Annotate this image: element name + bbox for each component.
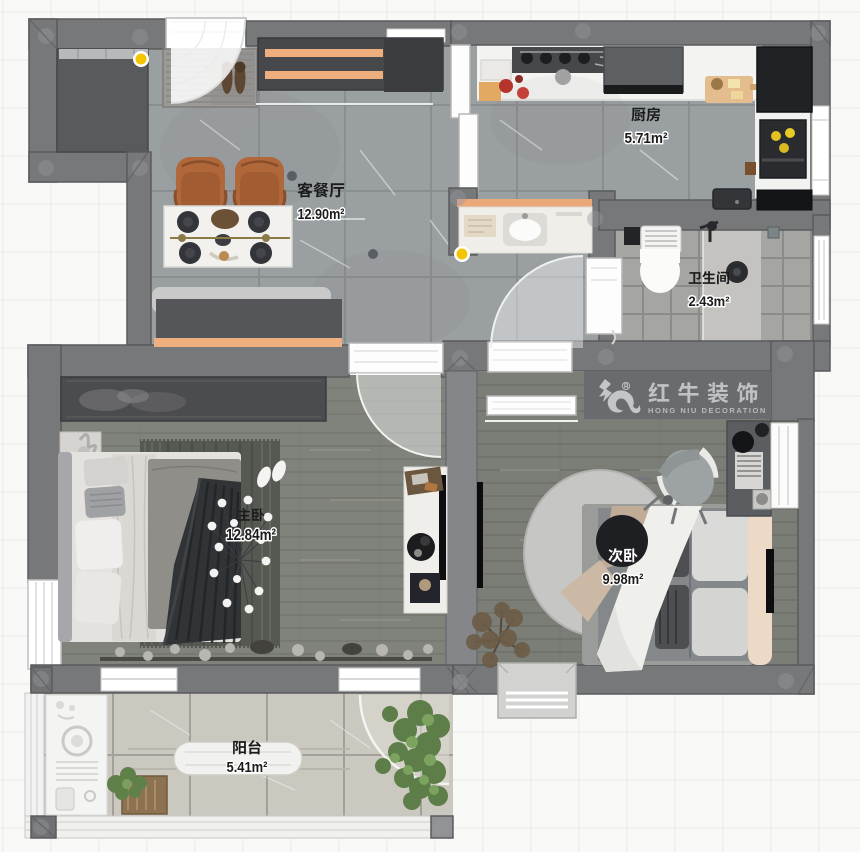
svg-text:12.90m²: 12.90m² — [298, 206, 345, 223]
svg-text:12.84m²: 12.84m² — [226, 527, 276, 544]
svg-text:9.98m²: 9.98m² — [603, 571, 644, 588]
svg-text:5.41m²: 5.41m² — [227, 759, 268, 776]
svg-text:2.43m²: 2.43m² — [689, 293, 730, 309]
svg-text:5.71m²: 5.71m² — [625, 130, 668, 147]
svg-text:HONG NIU DECORATION: HONG NIU DECORATION — [648, 406, 767, 415]
